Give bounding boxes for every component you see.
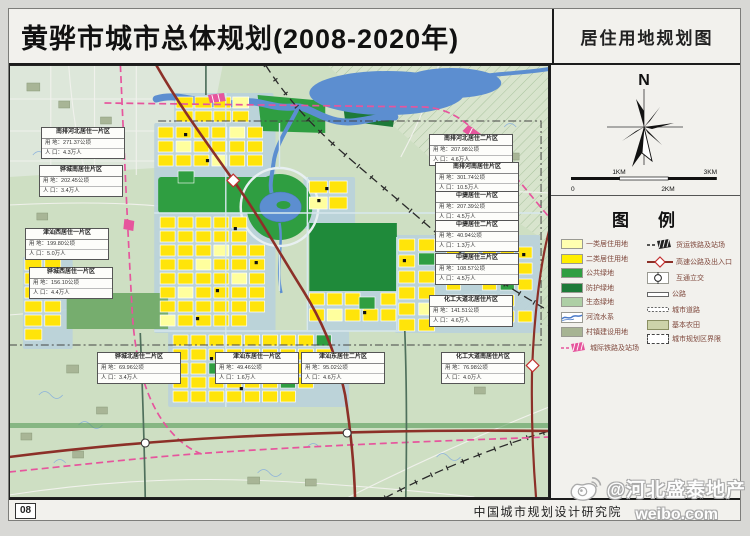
district-callout: 化工大道北居住片区用 地：141.51公顷人 口：4.6万人: [429, 295, 513, 327]
district-callout: 津汕东居住二片区用 地：95.02公顷人 口：4.6万人: [301, 352, 385, 384]
district-callout: 骅城西居住一片区用 地：156.10公顷人 口：4.4万人: [29, 267, 113, 299]
legend-item-expressway: 高速公路及出入口: [647, 256, 732, 268]
legend-item-city-road: 城市道路: [647, 304, 732, 315]
district-callout: 中捷居住一片区用 地：207.39公顷人 口：4.5万人: [435, 191, 519, 223]
legend-item-class1-residential: 一类居住用地: [561, 239, 647, 249]
page: 黄骅市城市总体规划(2008-2020年) 居住用地规划图: [0, 0, 750, 536]
legend-item-ecological-green: 生态绿地: [561, 297, 647, 307]
institute-name: 中国城市规划设计研究院: [473, 503, 622, 520]
legend-item-protective-green: 防护绿地: [561, 283, 647, 293]
class2-residential-swatch-icon: [561, 254, 583, 264]
legend-item-public-green: 公共绿地: [561, 268, 647, 278]
planning-boundary-swatch-icon: [647, 334, 669, 344]
page-number: 08: [15, 503, 36, 519]
compass-rose-icon: N: [551, 65, 737, 194]
legend-item-class2-residential: 二类居住用地: [561, 254, 647, 264]
legend-item-river-system: 河流水系: [561, 312, 647, 323]
ecological-green-swatch-icon: [561, 297, 583, 307]
river-swatch-icon: [561, 312, 583, 323]
scale-bar: 0 1KM 2KM 3KM: [571, 169, 717, 193]
north-label: N: [638, 72, 650, 89]
district-callout: 化工大道南居住片区用 地：76.98公顷人 口：4.0万人: [441, 352, 525, 384]
legend-item-basic-farmland: 基本农田: [647, 320, 732, 330]
compass-scale-panel: N: [551, 65, 740, 196]
scale-label: 2KM: [661, 186, 674, 193]
district-callout: 骅城北居住二片区用 地：69.96公顷人 口：3.4万人: [97, 352, 181, 384]
district-callout: 津汕东居住一片区用 地：49.46公顷人 口：1.6万人: [215, 352, 299, 384]
legend-item-freight-railway: 货运铁路及站场: [647, 239, 732, 251]
scale-label: 1KM: [612, 169, 625, 176]
protective-green-swatch-icon: [561, 283, 583, 293]
legend-left-column: 一类居住用地 二类居住用地 公共绿地 防护绿地 生态绿地 河流水系 村镇建设用地: [561, 239, 647, 358]
district-callout: 中捷居住三片区用 地：108.57公顷人 口：4.5万人: [435, 253, 519, 285]
freight-railway-swatch-icon: [647, 239, 673, 251]
scale-label: 0: [571, 186, 575, 193]
city-road-swatch-icon: [647, 304, 669, 315]
legend-item-village-construction: 村镇建设用地: [561, 327, 647, 337]
intercity-railway-swatch-icon: [561, 342, 587, 354]
scale-label: 3KM: [704, 169, 717, 176]
map-type-label: 居住用地规划图: [581, 24, 714, 49]
highway-swatch-icon: [647, 289, 669, 300]
basic-farmland-swatch-icon: [647, 320, 669, 330]
legend: 图 例 一类居住用地 二类居住用地 公共绿地 防护绿地 生态绿地 河流水系: [551, 196, 740, 358]
legend-right-column: 货运铁路及站场 高速公路及出入口 互通立交: [647, 239, 732, 358]
legend-item-intercity-railway: 城际铁路及站场: [561, 342, 647, 354]
village-construction-swatch-icon: [561, 327, 583, 337]
legend-item-highway: 公路: [647, 289, 732, 300]
district-callout: 南排河北居住一片区用 地：271.37公顷人 口：4.3万人: [41, 127, 125, 159]
page-title: 黄骅市城市总体规划(2008-2020年): [21, 17, 459, 56]
legend-title: 图 例: [561, 206, 732, 231]
district-callout: 南排河南居住片区用 地：301.74公顷人 口：10.5万人: [435, 162, 519, 194]
interchange-swatch-icon: [647, 272, 673, 284]
footer: 08 中国城市规划设计研究院: [9, 498, 740, 522]
header-title-cell: 黄骅市城市总体规划(2008-2020年): [9, 9, 552, 63]
district-callout: 骅城南居住片区用 地：202.45公顷人 口：3.4万人: [39, 165, 123, 197]
legend-item-interchange: 互通立交: [647, 272, 732, 284]
header-map-type-cell: 居住用地规划图: [552, 9, 740, 63]
class1-residential-swatch-icon: [561, 239, 583, 249]
public-green-swatch-icon: [561, 268, 583, 278]
map-area: 南排河北居住一片区用 地：271.37公顷人 口：4.3万人 骅城南居住片区用 …: [9, 65, 551, 498]
content: 南排河北居住一片区用 地：271.37公顷人 口：4.3万人 骅城南居住片区用 …: [9, 65, 740, 498]
header: 黄骅市城市总体规划(2008-2020年) 居住用地规划图: [9, 9, 740, 65]
planning-poster: 黄骅市城市总体规划(2008-2020年) 居住用地规划图: [8, 8, 741, 521]
legend-item-planning-boundary: 城市规划区界限: [647, 334, 732, 344]
district-callout: 津汕西居住一片区用 地：199.80公顷人 口：5.0万人: [25, 228, 109, 260]
district-callout: 中捷居住二片区用 地：40.94公顷人 口：1.3万人: [435, 220, 519, 252]
sidebar: N: [551, 65, 740, 498]
expressway-swatch-icon: [647, 256, 673, 268]
